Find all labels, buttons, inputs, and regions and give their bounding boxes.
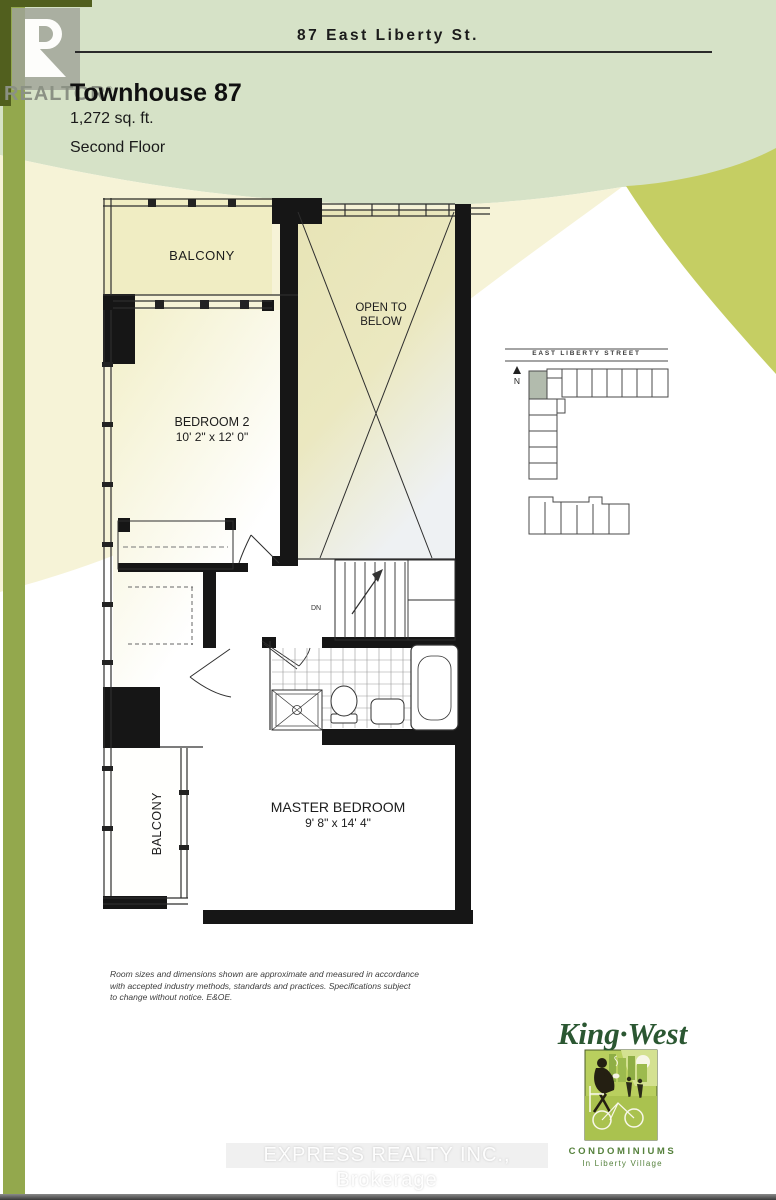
floorplan-page: REALTOR® 87 East Liberty St. Townhouse 8…	[0, 0, 776, 1200]
bedroom2-name: BEDROOM 2	[137, 415, 287, 430]
label-open-to-below: OPEN TO BELOW	[331, 302, 431, 330]
label-east-liberty-street: EAST LIBERTY STREET	[505, 350, 668, 357]
bedroom2-dims: 10' 2" x 12' 0"	[137, 430, 287, 444]
master-name: MASTER BEDROOM	[258, 799, 418, 816]
site-map	[505, 349, 668, 534]
shower	[272, 690, 322, 730]
label-bedroom2: BEDROOM 2 10' 2" x 12' 0"	[137, 415, 287, 444]
site-highlight-unit	[529, 371, 547, 399]
label-balcony-left: BALCONY	[150, 792, 164, 855]
kingwest-illustration-icon	[585, 1050, 657, 1140]
disclaimer-text: Room sizes and dimensions shown are appr…	[110, 969, 440, 1004]
label-stairs-dn: DN	[311, 605, 321, 612]
master-dims: 9' 8" x 14' 4"	[258, 816, 418, 830]
brand-type: CONDOMINIUMS	[545, 1146, 700, 1157]
toilet	[331, 686, 357, 723]
stair-arrow-icon	[372, 569, 383, 582]
disclaimer-line3: to change without notice. E&OE.	[110, 992, 440, 1004]
brand-name: King·West	[540, 1016, 705, 1052]
label-below: BELOW	[331, 316, 431, 330]
north-arrow-icon	[513, 366, 521, 374]
disclaimer-line1: Room sizes and dimensions shown are appr…	[110, 969, 440, 981]
label-master-bedroom: MASTER BEDROOM 9' 8" x 14' 4"	[258, 799, 418, 830]
brand-location: In Liberty Village	[545, 1159, 700, 1168]
scan-edge-bar	[0, 1194, 776, 1200]
disclaimer-line2: with accepted industry methods, standard…	[110, 981, 440, 993]
sink	[371, 699, 404, 724]
label-balcony-top: BALCONY	[157, 248, 247, 264]
bathtub	[411, 645, 458, 730]
label-open-to: OPEN TO	[331, 302, 431, 316]
brokerage-watermark: EXPRESS REALTY INC., Brokerage	[226, 1143, 548, 1168]
label-north: N	[511, 376, 523, 386]
